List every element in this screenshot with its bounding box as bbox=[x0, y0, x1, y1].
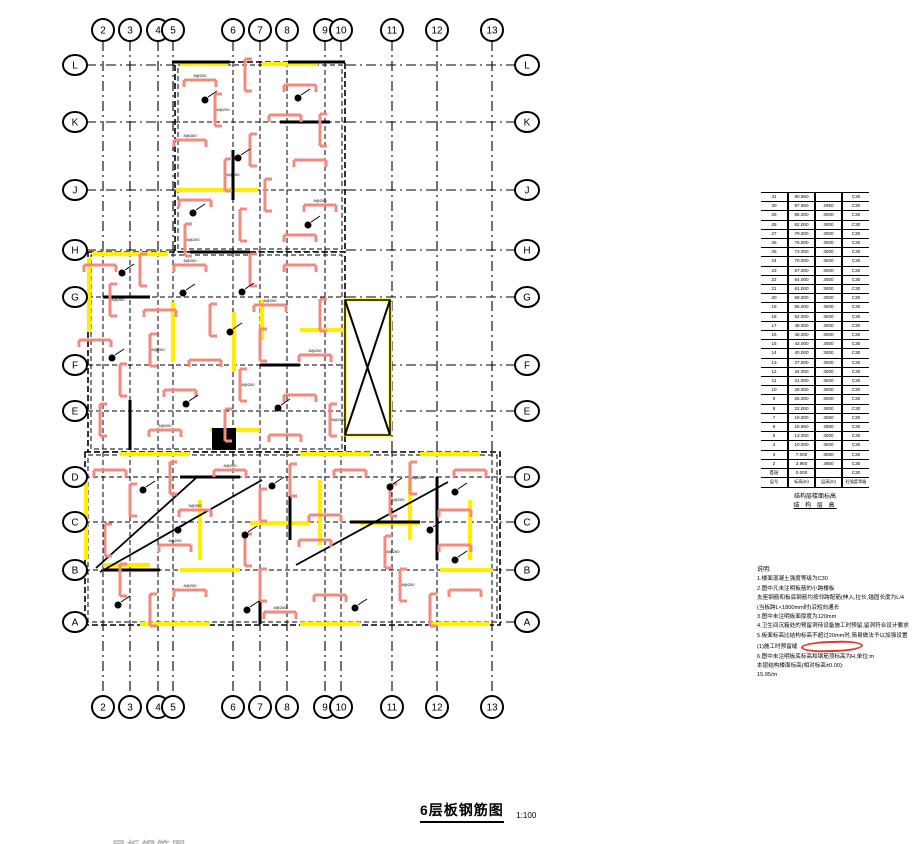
elevation-table-row: 1337.0003000C30 bbox=[761, 358, 869, 367]
elevation-table-cell: 3000 bbox=[815, 441, 842, 450]
elevation-table-cell: 49.000 bbox=[788, 321, 815, 330]
elevation-table-cell: C30 bbox=[842, 441, 869, 450]
elevation-table-cell: C30 bbox=[842, 211, 869, 220]
elevation-table-cell: C30 bbox=[842, 275, 869, 284]
elevation-table-cell: 3000 bbox=[815, 331, 842, 340]
elevation-table-cell: 3000 bbox=[815, 367, 842, 376]
elevation-table-row: 1646.0003000C30 bbox=[761, 331, 869, 340]
elevation-table-cell: 37.000 bbox=[788, 358, 815, 367]
slab-mark-dot bbox=[269, 483, 276, 490]
elevation-table-cell: 5 bbox=[761, 432, 788, 441]
elevation-table-cell: 3000 bbox=[815, 211, 842, 220]
rebar-spacing-label: 8@200 bbox=[169, 538, 183, 543]
elevation-table-cell: C30 bbox=[842, 239, 869, 248]
rebar-spacing-label: 8@200 bbox=[392, 497, 406, 502]
grid-bubble-label: 10 bbox=[335, 26, 347, 37]
grid-bubble-label: G bbox=[523, 293, 531, 304]
elevation-table-row: 2779.0003000C30 bbox=[761, 229, 869, 238]
notes-line: 1.楼面混凝土强度等级为C30 bbox=[757, 575, 922, 584]
elevation-table-cell: C30 bbox=[842, 395, 869, 404]
notes-line: 3.图中未注明板面厚度为120mm bbox=[757, 613, 922, 622]
elevation-table-cell: 12 bbox=[761, 367, 788, 376]
grid-bubble-label: 8 bbox=[284, 703, 290, 714]
grid-bubble-label: F bbox=[524, 361, 530, 372]
rebar-spacing-label: 8@200 bbox=[332, 417, 346, 422]
elevation-table-cell: 34.000 bbox=[788, 367, 815, 376]
grid-bubble-label: F bbox=[72, 361, 78, 372]
elevation-table-row: 37.0003050C30 bbox=[761, 450, 869, 459]
grid-bubble-label: H bbox=[523, 246, 530, 257]
elevation-table-cell: 13.000 bbox=[788, 432, 815, 441]
elevation-table-header-cell: 层号 bbox=[761, 478, 788, 487]
grid-bubble-label: B bbox=[72, 566, 79, 577]
elevation-table-cell: 3000 bbox=[815, 220, 842, 229]
elevation-table-row: 1131.0003000C30 bbox=[761, 377, 869, 386]
slab-mark-dot bbox=[295, 95, 302, 102]
elevation-table-row: 3087.9502950C30 bbox=[761, 202, 869, 211]
elevation-table-cell: C30 bbox=[842, 358, 869, 367]
grid-bubble-label: J bbox=[73, 186, 78, 197]
elevation-table-row: 2367.0003000C30 bbox=[761, 266, 869, 275]
building-outline bbox=[88, 252, 345, 452]
grid-bubble-label: C bbox=[523, 518, 530, 529]
elevation-table-cell: 3000 bbox=[815, 432, 842, 441]
elevation-table-cell: 90.950 bbox=[788, 193, 815, 202]
elevation-table-row: 822.0003000C30 bbox=[761, 404, 869, 413]
elevation-table-row: 1543.0003000C30 bbox=[761, 340, 869, 349]
grid-bubble-label: 13 bbox=[486, 703, 498, 714]
slab-mark-dot bbox=[180, 290, 187, 297]
elevation-table-cell: C30 bbox=[842, 321, 869, 330]
elevation-table-cell: 3000 bbox=[815, 285, 842, 294]
elevation-table-row: 1749.0003000C30 bbox=[761, 321, 869, 330]
elevation-table-cell: 31.000 bbox=[788, 377, 815, 386]
slab-mark-dot bbox=[427, 527, 434, 534]
elevation-table-cell: C30 bbox=[842, 257, 869, 266]
elevation-table-cell: C30 bbox=[842, 367, 869, 376]
elevation-table-row: 23.9503950C30 bbox=[761, 459, 869, 468]
slab-mark-dot bbox=[352, 605, 359, 612]
elevation-table-cell: 25 bbox=[761, 248, 788, 257]
elevation-table-cell: 3.950 bbox=[788, 459, 815, 468]
elevation-table-cell: 3000 bbox=[815, 404, 842, 413]
grid-bubble-label: 12 bbox=[431, 703, 443, 714]
rebar-spacing-label: 8@200 bbox=[264, 298, 278, 303]
elevation-table-cell: 3000 bbox=[815, 229, 842, 238]
elevation-table-cell: 55.000 bbox=[788, 303, 815, 312]
grid-bubble-label: D bbox=[71, 473, 78, 484]
elevation-table-cell: 3050 bbox=[815, 450, 842, 459]
elevation-table-row: 2161.0003000C30 bbox=[761, 285, 869, 294]
elevation-table-cell: C30 bbox=[842, 404, 869, 413]
elevation-table-cell: 3000 bbox=[815, 340, 842, 349]
elevation-table-cell: 20 bbox=[761, 294, 788, 303]
elevation-table-cell: 3000 bbox=[815, 321, 842, 330]
slab-mark-dot bbox=[305, 222, 312, 229]
slab-mark-dot bbox=[275, 405, 282, 412]
elevation-table-cell: 2950 bbox=[815, 423, 842, 432]
elevation-table-cell: 64.000 bbox=[788, 275, 815, 284]
elevation-table-row: 513.0003000C30 bbox=[761, 432, 869, 441]
elevation-table-cell: 3000 bbox=[815, 294, 842, 303]
elevation-table-row: 2264.0003000C30 bbox=[761, 275, 869, 284]
grid-bubble-label: L bbox=[72, 61, 78, 72]
elevation-table-cell: 79.000 bbox=[788, 229, 815, 238]
grid-bubble-label: 3 bbox=[127, 703, 133, 714]
slab-mark-dot bbox=[244, 607, 251, 614]
elevation-table-caption: 结构层楼面标高 结 构 层 高 bbox=[761, 493, 869, 511]
elevation-table-cell: 24 bbox=[761, 257, 788, 266]
next-sheet-title-clipped: 层板钢筋图 bbox=[112, 836, 187, 844]
grid-bubble-label: E bbox=[524, 407, 531, 418]
elevation-table-cell: 2 bbox=[761, 459, 788, 468]
elevation-table-cell: 19 bbox=[761, 303, 788, 312]
elevation-table-row: 1955.0003000C30 bbox=[761, 303, 869, 312]
elevation-table-cell: 3000 bbox=[815, 358, 842, 367]
elevation-table-cell: C30 bbox=[842, 386, 869, 395]
elevation-table-cell: C30 bbox=[842, 450, 869, 459]
elevation-table-cell: 7 bbox=[761, 413, 788, 422]
grid-bubble-label: 4 bbox=[155, 26, 161, 37]
notes-line: (1)施工时预留缝 bbox=[757, 641, 922, 652]
elevation-table-row: 1234.0003000C30 bbox=[761, 367, 869, 376]
slab-mark-dot bbox=[109, 355, 116, 362]
structural-elevation-table: 3190.950C303087.9502950C302985.0003000C3… bbox=[761, 192, 869, 488]
elevation-table-cell: 3000 bbox=[815, 239, 842, 248]
elevation-table-cell: 76.000 bbox=[788, 239, 815, 248]
grid-bubble-label: C bbox=[71, 518, 78, 529]
elevation-table-cell: 23 bbox=[761, 266, 788, 275]
rebar-spacing-label: 8@200 bbox=[152, 347, 166, 352]
elevation-table-cell: 9 bbox=[761, 395, 788, 404]
elevation-table-cell: 15.950 bbox=[788, 423, 815, 432]
elevation-table-row: 410.0003000C30 bbox=[761, 441, 869, 450]
grid-bubble-label: 12 bbox=[431, 26, 443, 37]
elevation-table-cell: 19.000 bbox=[788, 413, 815, 422]
elevation-table-cell: 28 bbox=[761, 220, 788, 229]
elevation-table-row: 2573.0003000C30 bbox=[761, 248, 869, 257]
elevation-table-row: 925.0003000C30 bbox=[761, 395, 869, 404]
elevation-table-cell: 70.000 bbox=[788, 257, 815, 266]
elevation-table-cell: 3000 bbox=[815, 275, 842, 284]
elevation-table-cell: 22.000 bbox=[788, 404, 815, 413]
elevation-table-cell bbox=[815, 193, 842, 202]
slab-mark-dot bbox=[452, 557, 459, 564]
elevation-table-cell: 3000 bbox=[815, 377, 842, 386]
notes-line: 本层结构楼面标高(相对标高±0.00): bbox=[757, 662, 922, 671]
notes-line: 2.图中凡未注明板筋的小跨楼板 bbox=[757, 585, 922, 594]
elevation-table-cell: C30 bbox=[842, 193, 869, 202]
elevation-table-cell: 67.000 bbox=[788, 266, 815, 275]
caption-line-1: 结构层楼面标高 bbox=[761, 493, 869, 502]
elevation-table-cell: 16 bbox=[761, 331, 788, 340]
elevation-table-cell: C30 bbox=[842, 423, 869, 432]
grid-bubble-label: 4 bbox=[155, 703, 161, 714]
elevation-table-cell: 3000 bbox=[815, 248, 842, 257]
grid-bubble-label: 6 bbox=[230, 703, 236, 714]
grid-bubble-label: 11 bbox=[387, 703, 398, 714]
rebar-spacing-label: 8@200 bbox=[112, 297, 126, 302]
elevation-table-row: 2058.0003000C30 bbox=[761, 294, 869, 303]
slab-mark-dot bbox=[239, 289, 246, 296]
elevation-table-cell: C30 bbox=[842, 285, 869, 294]
slab-mark-dot bbox=[119, 270, 126, 277]
elevation-table-cell: 11 bbox=[761, 377, 788, 386]
elevation-table-cell: 0.000 bbox=[788, 469, 815, 478]
rebar-spacing-label: 8@200 bbox=[184, 583, 198, 588]
slab-mark-dot bbox=[183, 401, 190, 408]
elevation-table-header-cell: 砼强度等级 bbox=[842, 478, 869, 487]
drawing-title: 6层板钢筋图 bbox=[420, 800, 504, 823]
grid-bubble-label: 2 bbox=[100, 703, 106, 714]
elevation-table-cell: 28.000 bbox=[788, 386, 815, 395]
grid-bubble-label: 9 bbox=[322, 703, 328, 714]
slab-mark-dot bbox=[387, 484, 394, 491]
grid-bubble-label: L bbox=[524, 61, 530, 72]
grid-bubble-label: 6 bbox=[230, 26, 236, 37]
elevation-table-cell: 3000 bbox=[815, 349, 842, 358]
elevation-table-panel: 3190.950C303087.9502950C302985.0003000C3… bbox=[761, 192, 869, 511]
grid-bubble-label: 8 bbox=[284, 26, 290, 37]
elevation-table-header-row: 层号标高(m)层高(m)砼强度等级 bbox=[761, 478, 869, 487]
rebar-spacing-label: 8@200 bbox=[412, 475, 426, 480]
elevation-table-cell: C30 bbox=[842, 229, 869, 238]
grid-bubble-label: J bbox=[525, 186, 530, 197]
grid-bubble-label: A bbox=[72, 618, 79, 629]
elevation-table-cell: 首层 bbox=[761, 469, 788, 478]
grid-bubble-label: A bbox=[524, 618, 531, 629]
elevation-table-cell: 82.000 bbox=[788, 220, 815, 229]
elevation-table-row: 2676.0003000C30 bbox=[761, 239, 869, 248]
rebar-spacing-label: 8@200 bbox=[189, 503, 203, 508]
elevation-table-cell: 3000 bbox=[815, 266, 842, 275]
rebar-spacing-label: 8@200 bbox=[402, 582, 416, 587]
elevation-table-cell: 7.000 bbox=[788, 450, 815, 459]
caption-line-2: 结 构 层 高 bbox=[761, 502, 869, 511]
elevation-table-cell: 3950 bbox=[815, 459, 842, 468]
elevation-table-cell: 6 bbox=[761, 423, 788, 432]
rebar-spacing-label: 8@200 bbox=[159, 423, 173, 428]
elevation-table-cell: 10 bbox=[761, 386, 788, 395]
elevation-table-cell: 10.000 bbox=[788, 441, 815, 450]
elevation-table-cell: C30 bbox=[842, 202, 869, 211]
drawing-title-block: 6层板钢筋图 1:100 bbox=[420, 800, 536, 823]
grid-bubble-label: D bbox=[523, 473, 530, 484]
elevation-table-cell: C30 bbox=[842, 266, 869, 275]
elevation-table-cell: 3000 bbox=[815, 386, 842, 395]
elevation-table-cell: 13 bbox=[761, 358, 788, 367]
elevation-table-cell: 21 bbox=[761, 285, 788, 294]
elevation-table-cell: 22 bbox=[761, 275, 788, 284]
notes-line: (当板跨L<1800mm时)沿短向通长 bbox=[757, 604, 922, 613]
floor-plan: 8@2008@2008@2008@2008@2008@2008@2008@200… bbox=[0, 0, 560, 730]
grid-bubble-label: 10 bbox=[335, 703, 347, 714]
elevation-table-cell: 8 bbox=[761, 404, 788, 413]
elevation-table-cell: 4 bbox=[761, 441, 788, 450]
elevation-table-header-cell: 层高(m) bbox=[815, 478, 842, 487]
elevation-table-cell: C30 bbox=[842, 303, 869, 312]
notes-lines: 1.楼面混凝土强度等级为C302.图中凡未注明板筋的小跨楼板 支座钢筋和板底钢筋… bbox=[757, 575, 922, 680]
elevation-table-cell: C30 bbox=[842, 248, 869, 257]
elevation-table-cell: C30 bbox=[842, 469, 869, 478]
elevation-table-cell: 26 bbox=[761, 239, 788, 248]
elevation-table-cell: C30 bbox=[842, 377, 869, 386]
grid-bubble-label: 9 bbox=[322, 26, 328, 37]
grid-bubble-label: 2 bbox=[100, 26, 106, 37]
elevation-table-cell: 87.950 bbox=[788, 202, 815, 211]
grid-bubble-label: B bbox=[524, 566, 531, 577]
general-notes: 说明: 1.楼面混凝土强度等级为C302.图中凡未注明板筋的小跨楼板 支座钢筋和… bbox=[757, 566, 922, 681]
grid-bubble-label: K bbox=[524, 118, 531, 129]
slab-mark-dot bbox=[115, 602, 122, 609]
elevation-table-row: 615.9502950C30 bbox=[761, 423, 869, 432]
elevation-table-row: 2470.0003000C30 bbox=[761, 257, 869, 266]
elevation-table-row: 2985.0003000C30 bbox=[761, 211, 869, 220]
rebar-spacing-label: 8@200 bbox=[314, 198, 328, 203]
elevation-table-cell: C30 bbox=[842, 312, 869, 321]
slab-mark-dot bbox=[227, 329, 234, 336]
elevation-table-cell bbox=[815, 469, 842, 478]
elevation-table-cell: 3 bbox=[761, 450, 788, 459]
elevation-table-cell: C30 bbox=[842, 459, 869, 468]
rebar-spacing-label: 8@200 bbox=[184, 133, 198, 138]
slab-mark-dot bbox=[190, 210, 197, 217]
elevation-table-row: 1028.0003000C30 bbox=[761, 386, 869, 395]
rebar-spacing-label: 8@200 bbox=[184, 258, 198, 263]
elevation-table-cell: C30 bbox=[842, 340, 869, 349]
rebar-spacing-label: 8@200 bbox=[187, 237, 201, 242]
slab-mark-dot bbox=[175, 527, 182, 534]
elevation-table-row: 719.0003050C30 bbox=[761, 413, 869, 422]
elevation-table-row: 2882.0003000C30 bbox=[761, 220, 869, 229]
red-cloud-mark bbox=[801, 640, 863, 653]
elevation-table-cell: 30 bbox=[761, 202, 788, 211]
elevation-table-cell: 58.000 bbox=[788, 294, 815, 303]
notes-line: 4.卫生间沉箱处的预留洞待设备施工时预留,留洞符合设计要求 bbox=[757, 622, 922, 631]
grid-bubble-label: 7 bbox=[257, 26, 263, 37]
grid-bubble-label: 3 bbox=[127, 26, 133, 37]
elevation-table-cell: 3000 bbox=[815, 312, 842, 321]
elevation-table-cell: 2950 bbox=[815, 202, 842, 211]
elevation-table-cell: 85.000 bbox=[788, 211, 815, 220]
elevation-table-header-cell: 标高(m) bbox=[788, 478, 815, 487]
rebar-spacing-label: 8@200 bbox=[387, 549, 401, 554]
elevation-table-cell: 52.000 bbox=[788, 312, 815, 321]
elevation-table-cell: C30 bbox=[842, 331, 869, 340]
drawing-scale: 1:100 bbox=[516, 811, 536, 823]
notes-line: 15.95/m bbox=[757, 671, 922, 680]
grid-bubble-label: K bbox=[72, 118, 79, 129]
elevation-table-cell: 3000 bbox=[815, 303, 842, 312]
notes-line: 支座钢筋和板底钢筋均按邻跨配筋(伸入,拉长,锚固长度为L/4 bbox=[757, 594, 922, 603]
grid-bubble-label: H bbox=[71, 246, 78, 257]
grid-bubble-label: 5 bbox=[170, 703, 176, 714]
rebar-spacing-label: 8@200 bbox=[227, 172, 241, 177]
drawing-sheet: 8@2008@2008@2008@2008@2008@2008@2008@200… bbox=[0, 0, 923, 844]
elevation-table-row: 1440.0003000C30 bbox=[761, 349, 869, 358]
elevation-table-cell: 3050 bbox=[815, 413, 842, 422]
slab-mark-dot bbox=[242, 532, 249, 539]
elevation-table-cell: 29 bbox=[761, 211, 788, 220]
floor-plan-svg: 8@2008@2008@2008@2008@2008@2008@2008@200… bbox=[0, 0, 560, 730]
grid-bubble-label: G bbox=[71, 293, 79, 304]
rebar-spacing-label: 8@200 bbox=[242, 382, 256, 387]
elevation-table-cell: 25.000 bbox=[788, 395, 815, 404]
rebar-spacing-label: 8@200 bbox=[224, 463, 238, 468]
elevation-table-cell: 17 bbox=[761, 321, 788, 330]
grid-bubble-label: E bbox=[72, 407, 79, 418]
grid-bubble-label: 7 bbox=[257, 703, 263, 714]
elevation-table-cell: 46.000 bbox=[788, 331, 815, 340]
elevation-table-cell: 73.000 bbox=[788, 248, 815, 257]
grid-bubble-label: 13 bbox=[486, 26, 498, 37]
grid-bubble-label: 11 bbox=[387, 26, 398, 37]
grid-bubble-label: 5 bbox=[170, 26, 176, 37]
slab-mark-dot bbox=[235, 155, 242, 162]
notes-line: 6.图中未注明板底标高和钢筋顶标高为H,单位:m bbox=[757, 653, 922, 662]
elevation-table-cell: C30 bbox=[842, 220, 869, 229]
elevation-table-cell: C30 bbox=[842, 349, 869, 358]
notes-title: 说明: bbox=[757, 566, 922, 575]
elevation-table-cell: 43.000 bbox=[788, 340, 815, 349]
slab-mark-dot bbox=[202, 97, 209, 104]
elevation-table-cell: 61.000 bbox=[788, 285, 815, 294]
rebar-spacing-label: 8@200 bbox=[274, 605, 288, 610]
elevation-table-cell: 40.000 bbox=[788, 349, 815, 358]
slab-mark-dot bbox=[140, 487, 147, 494]
elevation-table-cell: 3000 bbox=[815, 257, 842, 266]
elevation-table-row: 首层0.000C30 bbox=[761, 469, 869, 478]
elevation-table-cell: 27 bbox=[761, 229, 788, 238]
rebar-spacing-label: 8@200 bbox=[194, 73, 208, 78]
rebar-spacing-label: 8@200 bbox=[309, 348, 323, 353]
slab-mark-dot bbox=[452, 489, 459, 496]
elevation-table-cell: 14 bbox=[761, 349, 788, 358]
elevation-table-cell: 31 bbox=[761, 193, 788, 202]
elevation-table-row: 3190.950C30 bbox=[761, 193, 869, 202]
elevation-table-cell: 18 bbox=[761, 312, 788, 321]
elevation-table-row: 1852.0003000C30 bbox=[761, 312, 869, 321]
rebar-spacing-label: 8@200 bbox=[217, 107, 231, 112]
elevation-table-cell: C30 bbox=[842, 294, 869, 303]
elevation-table-cell: C30 bbox=[842, 413, 869, 422]
elevation-table-cell: 3000 bbox=[815, 395, 842, 404]
elevation-table-cell: 15 bbox=[761, 340, 788, 349]
elevation-table-cell: C30 bbox=[842, 432, 869, 441]
